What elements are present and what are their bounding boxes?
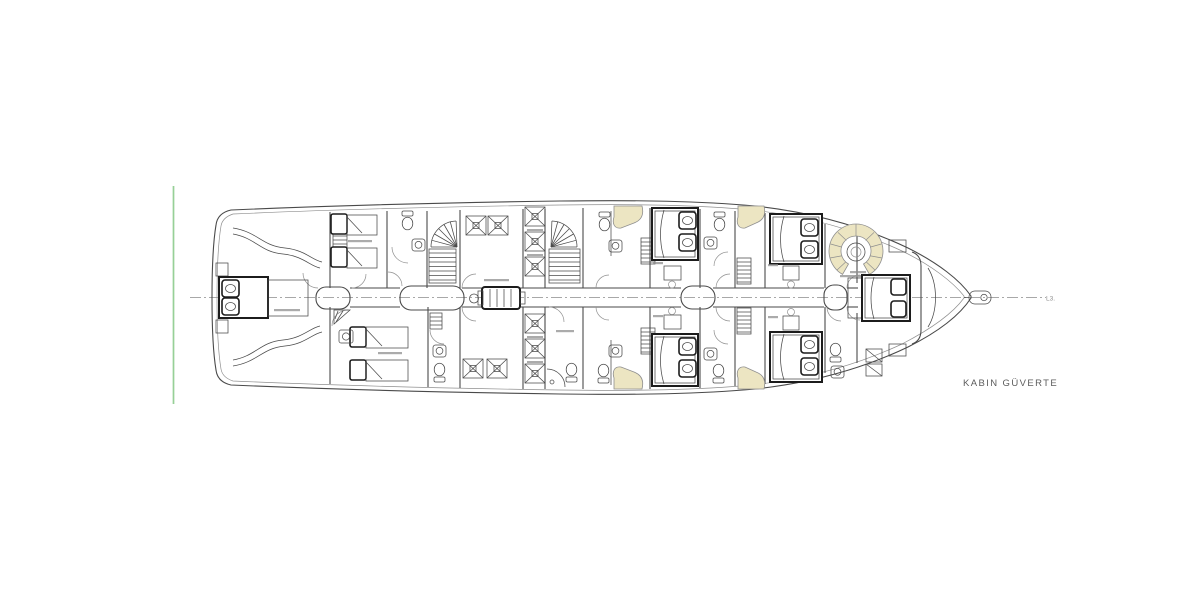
pillow (679, 234, 696, 251)
toilet (434, 363, 445, 382)
chair (669, 308, 676, 315)
desk (664, 315, 681, 329)
desk (783, 266, 799, 280)
aft-twin-cabin (331, 214, 377, 268)
micro-label (653, 315, 663, 317)
aft-wc-top (392, 211, 425, 263)
micro-label (768, 316, 778, 318)
micro-label (768, 264, 778, 266)
vanity-counter (613, 206, 642, 228)
guest-cabin-1-top (652, 208, 728, 288)
door-arc (462, 307, 476, 321)
pillow (801, 219, 818, 236)
door-arc (596, 307, 609, 320)
door-arc (714, 330, 728, 344)
pillow (222, 298, 239, 315)
sink (704, 348, 717, 360)
micro-label (527, 254, 543, 256)
guest-cabin-2-top (737, 206, 822, 288)
stair-straight (549, 249, 580, 283)
deck-title: KABIN GÜVERTE (963, 378, 1058, 389)
sofa-curve (233, 332, 322, 366)
micro-label (527, 336, 543, 338)
deck-plan-page: L3. (0, 0, 1200, 600)
toilet (714, 212, 725, 231)
sink (704, 237, 717, 249)
round-table (847, 243, 865, 261)
pillow (679, 338, 696, 355)
sink (412, 239, 425, 251)
pillow (801, 358, 818, 375)
guest-cabin-2-bottom (737, 308, 822, 389)
door-arc (303, 273, 318, 288)
micro-label (850, 271, 866, 273)
chair (788, 309, 795, 316)
stair-straight (429, 249, 456, 283)
micro-label (274, 309, 300, 311)
centerline-marker: L3. (1046, 296, 1055, 303)
desk (783, 316, 799, 330)
door-arc (430, 330, 444, 344)
centerline: L3. (190, 296, 1055, 303)
machinery-unit (470, 279, 526, 309)
desk (664, 266, 681, 280)
deck-plan-drawing: L3. (0, 0, 1200, 600)
sofa-curve (233, 234, 320, 268)
pillow (350, 360, 366, 380)
vanity-counter (737, 206, 764, 228)
toilet (830, 343, 841, 362)
chair (669, 281, 676, 288)
pillow (331, 247, 347, 267)
aft-stairwell (429, 221, 457, 283)
door-arc (388, 272, 402, 286)
toilet (566, 363, 577, 382)
door-arc (716, 274, 730, 288)
pillow (679, 212, 696, 229)
pillow (679, 360, 696, 377)
pillow (891, 279, 906, 295)
aft-wc-bottom (430, 313, 446, 382)
forward-shower-room (547, 307, 577, 387)
door-arc (352, 274, 366, 288)
door-arc (596, 275, 609, 288)
toilet (713, 364, 724, 383)
micro-label (484, 279, 509, 281)
chair (788, 281, 795, 288)
forward-stairwell (549, 221, 580, 283)
toilet (599, 212, 610, 231)
door-arc (549, 307, 564, 322)
pillow (331, 214, 347, 234)
guest-cabin-1-bottom (652, 308, 728, 387)
door-arc (392, 247, 408, 263)
door-arc (462, 274, 476, 288)
shower-arc (547, 369, 565, 387)
micro-label (378, 352, 402, 354)
pillow (222, 280, 239, 297)
door-arc (714, 252, 728, 266)
sink (433, 345, 446, 357)
aft-cabin-bottom (332, 310, 408, 381)
door-arc (716, 307, 730, 321)
wardrobe (737, 308, 751, 334)
sofa-curve (233, 326, 320, 360)
pillow (801, 336, 818, 353)
micro-label (348, 240, 372, 242)
sofa-curve (233, 228, 322, 262)
wardrobe (737, 258, 751, 284)
vanity-counter (613, 367, 642, 389)
dinette (829, 224, 883, 277)
toilet (402, 211, 413, 230)
micro-label (653, 262, 663, 264)
pillow (891, 301, 906, 317)
toilet (598, 364, 609, 383)
micro-label (556, 330, 574, 332)
vanity-counter (737, 367, 764, 389)
pillow (801, 241, 818, 258)
micro-label (527, 361, 543, 363)
micro-label (527, 229, 543, 231)
